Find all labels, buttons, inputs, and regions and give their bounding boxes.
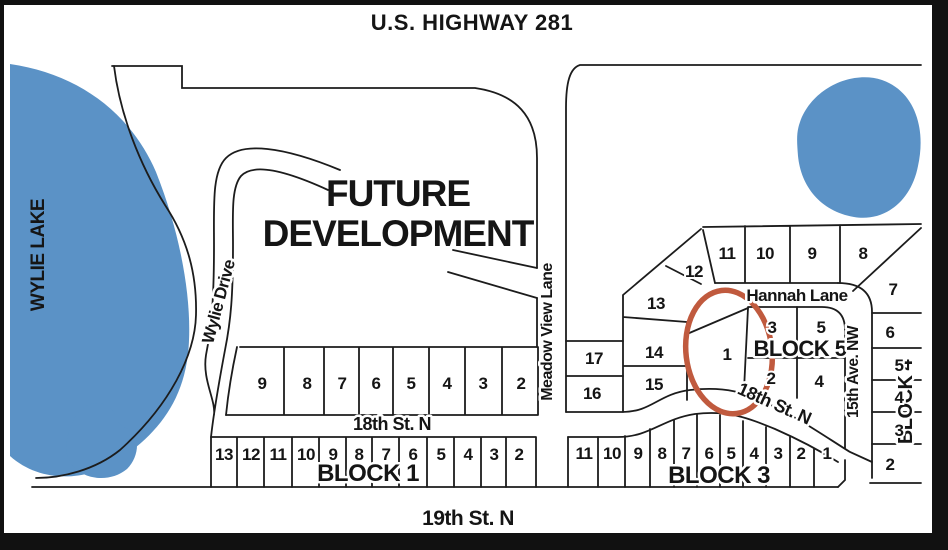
- future-development-label-1: FUTURE: [326, 173, 470, 214]
- lot-number: 5: [437, 445, 446, 464]
- lot-number: 11: [719, 244, 736, 263]
- lot-number: 1: [823, 444, 832, 463]
- plat-map: U.S. HIGHWAY 281 WYLIE LAKE FUTURE DEVEL…: [0, 0, 948, 550]
- lot-number: 9: [258, 374, 267, 393]
- lot-number: 8: [355, 445, 364, 464]
- lot-number: 5: [727, 444, 736, 463]
- lot-number: 11: [576, 444, 593, 463]
- lot-number: 6: [705, 444, 714, 463]
- lot-number: 2: [797, 444, 806, 463]
- lot-number: 8: [303, 374, 312, 393]
- lot-number: 4: [895, 388, 905, 407]
- wylie-lake-label: WYLIE LAKE: [28, 199, 49, 311]
- lot-number: 6: [886, 323, 895, 342]
- block1-top-row-lines: [226, 347, 538, 415]
- meadow-view-lane-label: Meadow View Lane: [539, 263, 556, 401]
- lot-number: 3: [895, 421, 904, 440]
- lot-number: 9: [329, 445, 338, 464]
- lot-number: 6: [409, 445, 418, 464]
- lot-number: 7: [382, 445, 391, 464]
- lot-number: 15: [645, 375, 663, 394]
- lot-number: 10: [603, 444, 621, 463]
- lot-number: 7: [682, 444, 691, 463]
- lot-number: 4: [750, 444, 760, 463]
- street-18th-west-label: 18th St. N: [353, 414, 431, 434]
- lot-number: 11: [270, 445, 287, 464]
- lot-numbers-north-row: 111098: [719, 244, 868, 263]
- lot-number: 12: [685, 262, 703, 281]
- lot-number: 10: [756, 244, 774, 263]
- lot-numbers-block1-top: 98765432: [258, 374, 526, 393]
- lot-number: 4: [464, 445, 474, 464]
- lot-number: 3: [768, 318, 777, 337]
- lot-number: 7: [889, 280, 898, 299]
- plat-map-canvas: U.S. HIGHWAY 281 WYLIE LAKE FUTURE DEVEL…: [4, 5, 932, 533]
- lot-number: 6: [372, 374, 381, 393]
- lot-number: 3: [490, 445, 499, 464]
- wylie-drive-label: Wylie Drive: [198, 258, 239, 346]
- lot-number: 2: [515, 445, 524, 464]
- lot-number: 17: [585, 349, 603, 368]
- highway-title: U.S. HIGHWAY 281: [371, 10, 573, 35]
- lot-number: 3: [479, 374, 488, 393]
- lot-number: 10: [297, 445, 315, 464]
- lot-number: 2: [767, 369, 776, 388]
- lot-number: 4: [443, 374, 453, 393]
- lot-number: 9: [808, 244, 817, 263]
- future-development-label-2: DEVELOPMENT: [263, 213, 535, 254]
- lot-number: 8: [859, 244, 868, 263]
- lot-number: 5: [895, 356, 904, 375]
- block1-label: BLOCK 1: [317, 460, 419, 487]
- side-road: [448, 250, 537, 298]
- lot-number: 13: [215, 445, 233, 464]
- lot-number: 8: [658, 444, 667, 463]
- lot-number: 1: [723, 345, 732, 364]
- lot-number: 2: [517, 374, 526, 393]
- ave-15th-label: 15th Ave. NW: [845, 325, 862, 418]
- lot-number: 13: [647, 294, 665, 313]
- lot-number: 14: [645, 343, 664, 362]
- lot-number: 5: [407, 374, 416, 393]
- hannah-lane-label: Hannah Lane: [746, 286, 847, 305]
- lot-number: 12: [242, 445, 260, 464]
- lot-number: 16: [583, 384, 601, 403]
- pond-northeast-shape: [797, 77, 920, 218]
- lot-number: 4: [815, 372, 825, 391]
- lot-number: 2: [886, 455, 895, 474]
- street-19th-label: 19th St. N: [422, 507, 514, 530]
- lot-number: 3: [774, 444, 783, 463]
- lot-numbers-block3: 1110987654321: [576, 444, 832, 463]
- lot-number: 7: [338, 374, 347, 393]
- lot-number: 9: [634, 444, 643, 463]
- block3-label: BLOCK 3: [668, 462, 770, 489]
- lot-number: 5: [817, 318, 826, 337]
- block5-label: BLOCK 5: [753, 336, 846, 361]
